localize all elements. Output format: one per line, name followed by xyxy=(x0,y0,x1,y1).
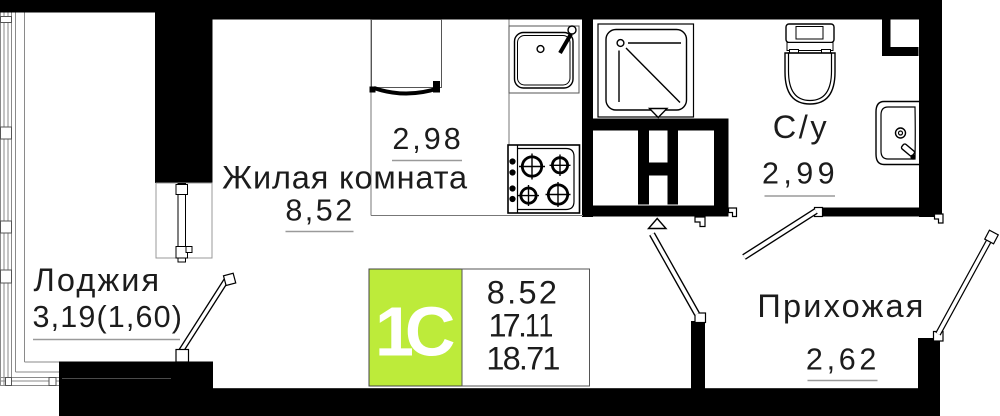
svg-text:2,98: 2,98 xyxy=(392,122,463,156)
svg-text:3,19(1,60): 3,19(1,60) xyxy=(33,300,184,334)
svg-text:Жилая комната: Жилая комната xyxy=(222,160,468,196)
svg-text:18.71: 18.71 xyxy=(486,341,559,377)
svg-text:Прихожая: Прихожая xyxy=(757,288,925,324)
svg-text:8.52: 8.52 xyxy=(487,275,559,311)
svg-text:Лоджия: Лоджия xyxy=(34,262,162,298)
svg-text:1: 1 xyxy=(525,308,540,344)
svg-text:17.: 17. xyxy=(489,308,528,344)
svg-text:1: 1 xyxy=(538,308,553,344)
svg-text:2,99: 2,99 xyxy=(762,157,839,191)
svg-text:С/у: С/у xyxy=(773,109,830,145)
svg-text:1С: 1С xyxy=(375,293,454,371)
svg-text:8,52: 8,52 xyxy=(285,194,354,228)
svg-text:2,62: 2,62 xyxy=(806,343,880,377)
